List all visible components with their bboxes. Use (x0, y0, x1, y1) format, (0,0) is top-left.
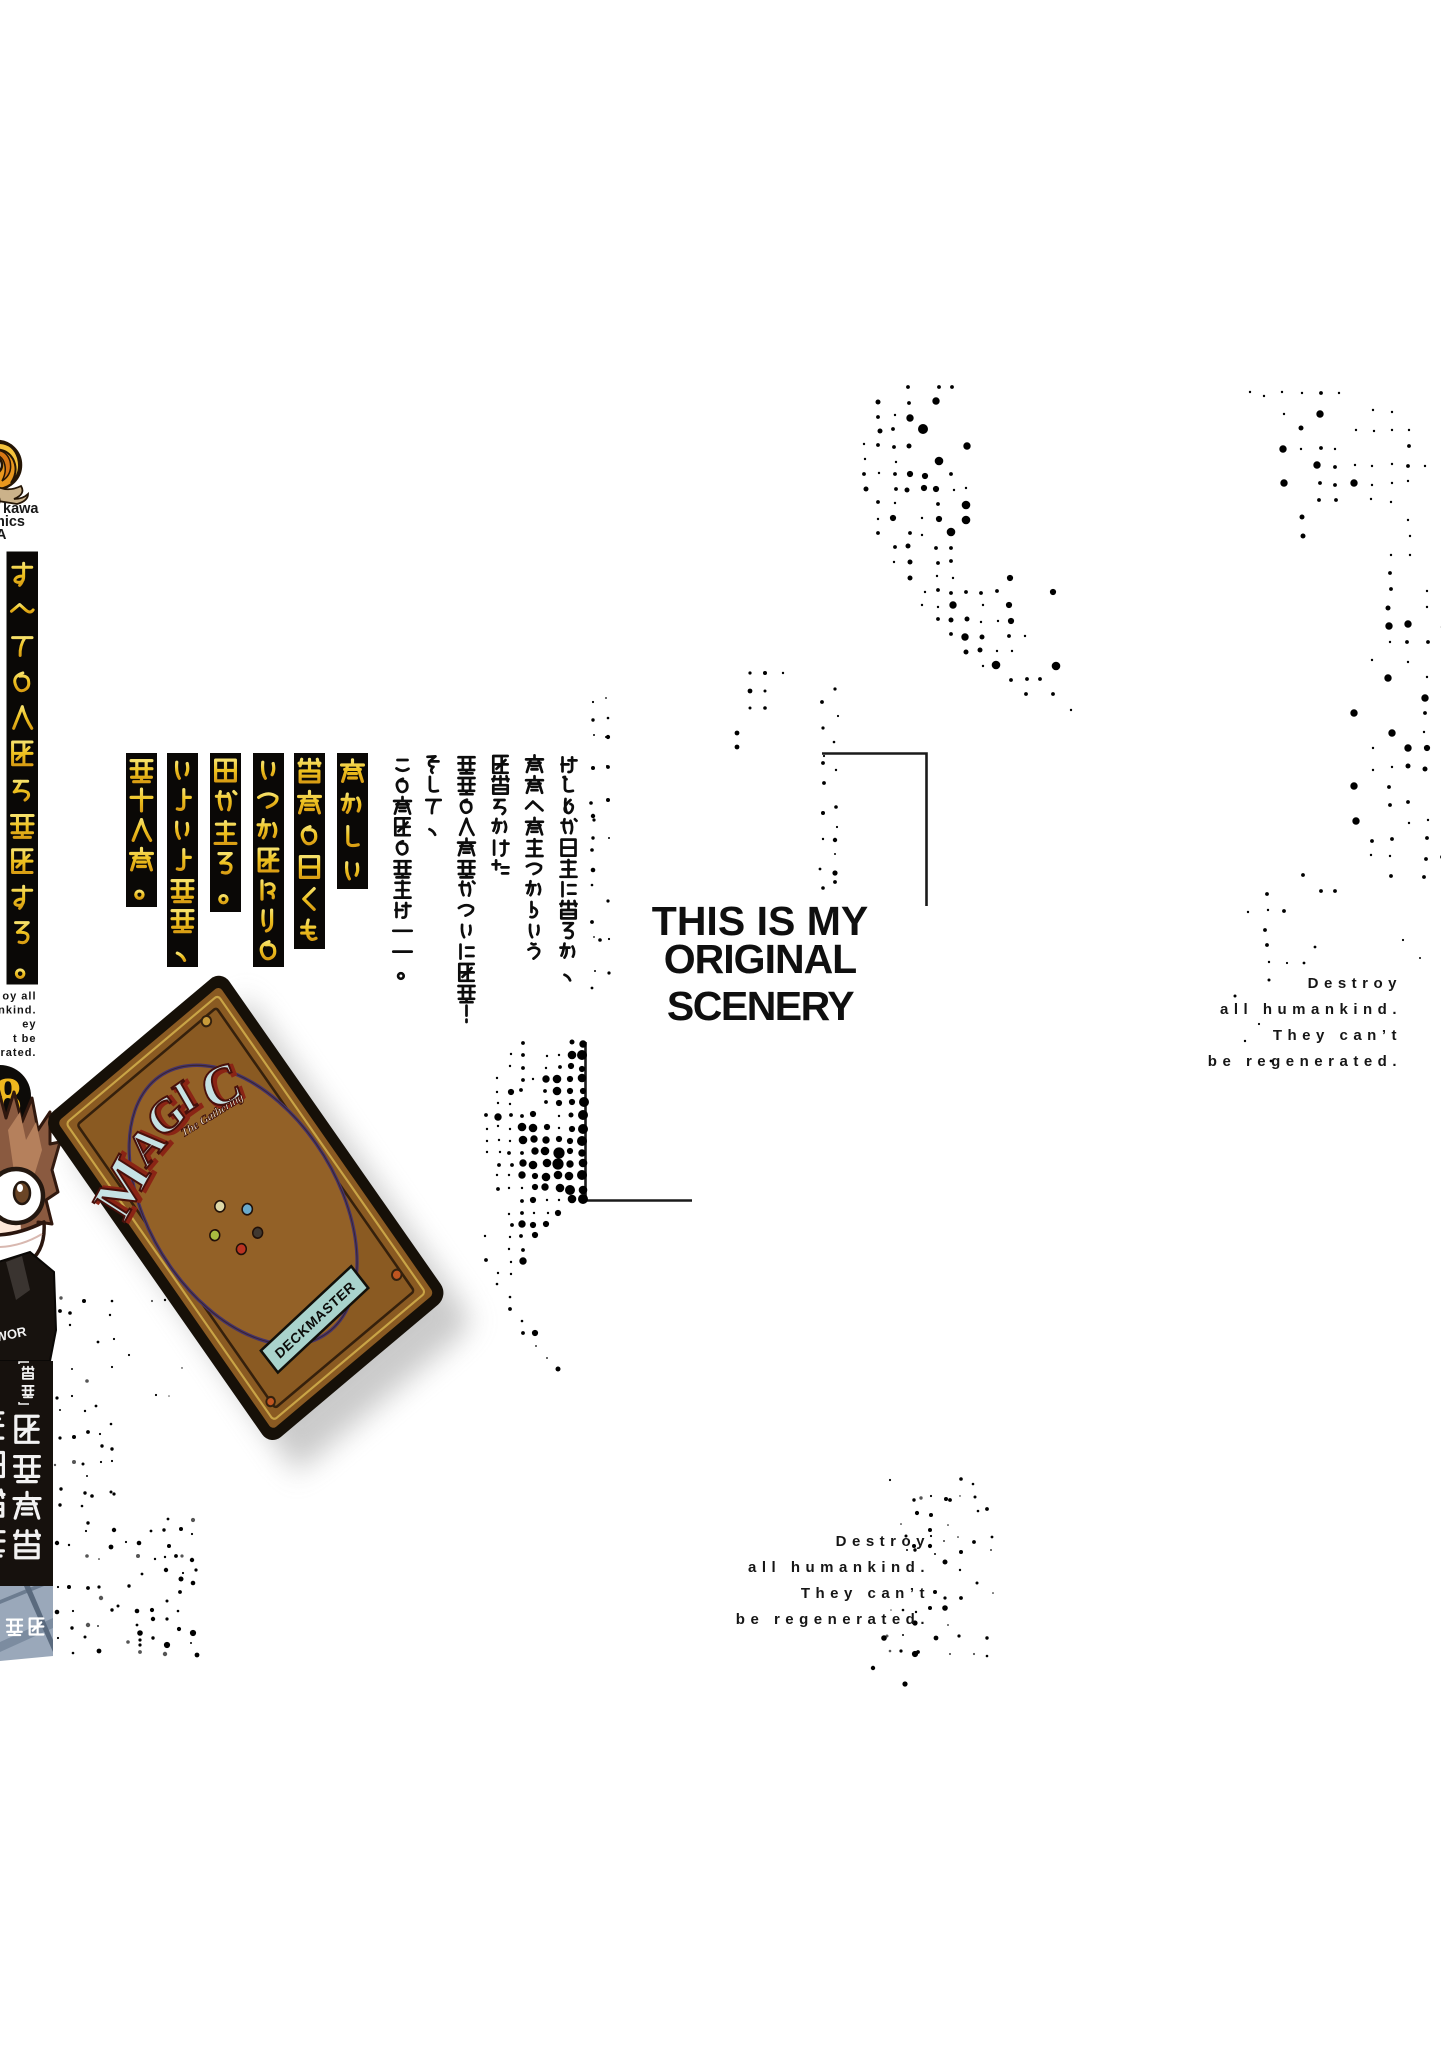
svg-text:ey: ey (22, 1019, 36, 1031)
svg-text:nkind.: nkind. (0, 1005, 37, 1017)
svg-text:A: A (0, 527, 7, 543)
svg-text:oy all: oy all (2, 991, 36, 1003)
svg-text:t be: t be (13, 1033, 37, 1045)
svg-text:rated.: rated. (1, 1047, 37, 1059)
